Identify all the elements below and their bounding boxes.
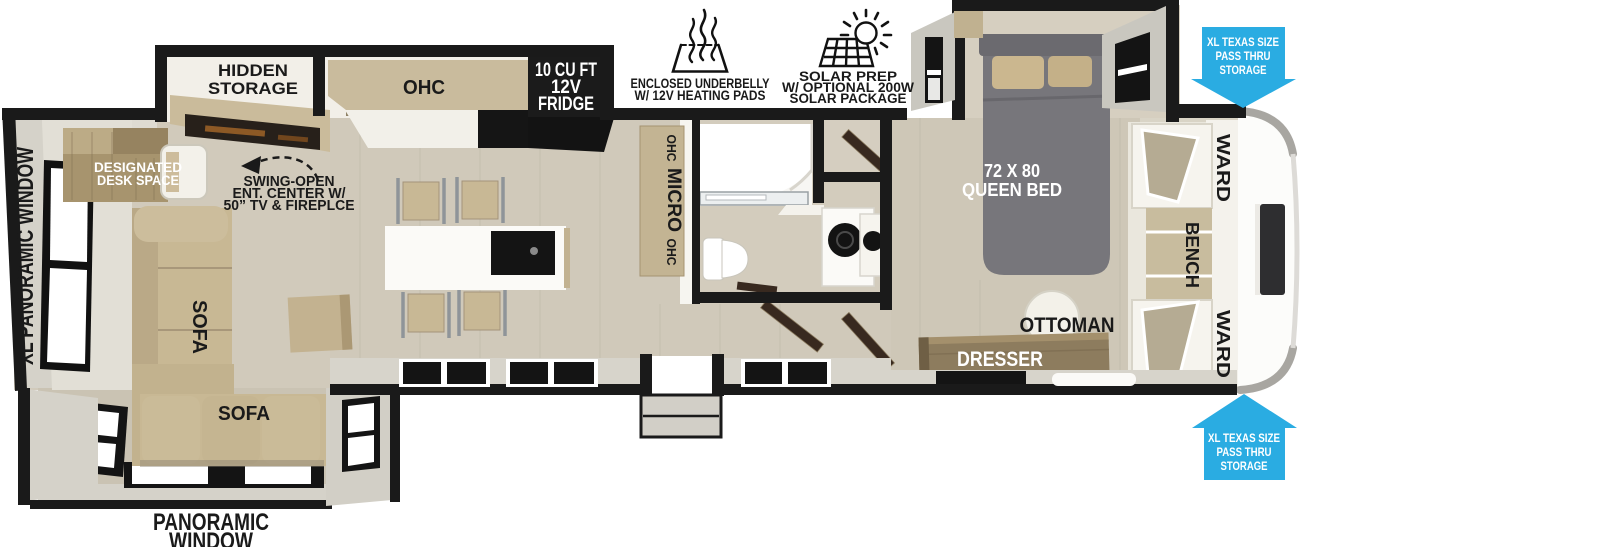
svg-text:XL TEXAS SIZE: XL TEXAS SIZE: [1207, 35, 1279, 49]
svg-text:SOFA: SOFA: [188, 300, 210, 354]
svg-text:SOLAR PACKAGE: SOLAR PACKAGE: [790, 91, 907, 106]
svg-text:72 X 80: 72 X 80: [984, 161, 1040, 181]
svg-text:WARD: WARD: [1213, 310, 1233, 378]
svg-text:QUEEN BED: QUEEN BED: [962, 180, 1062, 200]
svg-text:MICRO: MICRO: [663, 168, 684, 232]
svg-text:FRIDGE: FRIDGE: [538, 94, 594, 115]
svg-text:WINDOW: WINDOW: [169, 528, 253, 547]
svg-text:50” TV & FIREPLCE: 50” TV & FIREPLCE: [224, 198, 355, 214]
svg-text:OHC: OHC: [664, 135, 679, 163]
svg-text:STORAGE: STORAGE: [1220, 63, 1267, 77]
svg-text:DESK SPACE: DESK SPACE: [97, 172, 179, 188]
svg-text:XL PANORAMIC WINDOW: XL PANORAMIC WINDOW: [12, 147, 38, 365]
svg-text:STORAGE: STORAGE: [208, 79, 298, 98]
svg-text:PASS THRU: PASS THRU: [1217, 445, 1272, 459]
svg-text:BENCH: BENCH: [1182, 222, 1202, 288]
svg-text:OTTOMAN: OTTOMAN: [1020, 314, 1115, 337]
svg-text:WARD: WARD: [1213, 134, 1233, 202]
svg-text:XL TEXAS SIZE: XL TEXAS SIZE: [1208, 431, 1280, 445]
svg-text:DRESSER: DRESSER: [957, 348, 1043, 371]
svg-text:STORAGE: STORAGE: [1221, 459, 1268, 473]
svg-text:HIDDEN: HIDDEN: [218, 61, 288, 80]
svg-text:W/ 12V HEATING PADS: W/ 12V HEATING PADS: [635, 88, 766, 103]
svg-text:PASS THRU: PASS THRU: [1216, 49, 1271, 63]
svg-text:OHC: OHC: [664, 239, 679, 267]
svg-text:SOFA: SOFA: [218, 403, 270, 425]
svg-text:OHC: OHC: [403, 77, 445, 99]
